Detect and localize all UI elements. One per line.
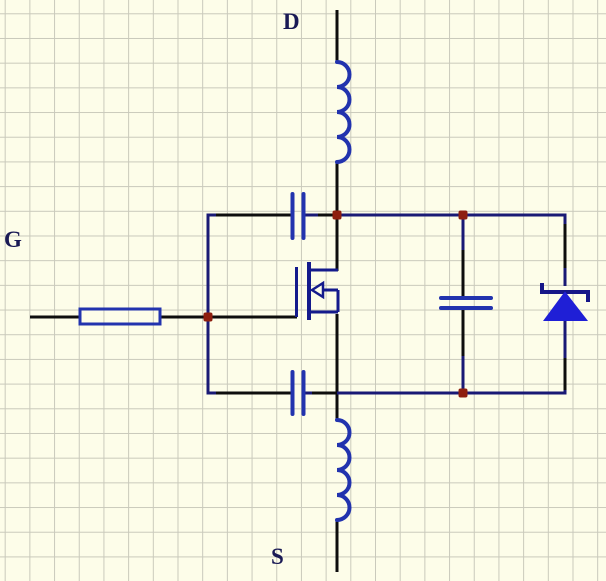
gate-terminal-label[interactable]: G [4,228,22,251]
mosfet-symbol[interactable] [297,262,339,320]
junction-dot-drain-top [333,211,342,220]
source-inductor[interactable] [337,420,350,520]
junction-dot-cap-bottom [459,389,468,398]
left-loop-wire[interactable] [208,215,216,393]
drain-terminal-label[interactable]: D [283,10,300,33]
mosfet-arrow-icon [312,283,323,297]
navy-wires [208,215,565,393]
schottky-diode-symbol[interactable] [542,283,588,320]
circuit-drawing [0,0,606,581]
diode-anode-triangle[interactable] [545,293,586,320]
passive-components [80,62,491,520]
gate-resistor[interactable] [80,309,160,324]
source-terminal-label[interactable]: S [271,545,284,568]
junction-dot-cap-top [459,211,468,220]
schematic-canvas: D G S [0,0,606,581]
drain-inductor[interactable] [337,62,350,162]
bottom-wire-right-segment[interactable] [337,390,565,393]
junction-dot-gate [204,313,213,322]
top-wire-right-segment[interactable] [341,215,565,224]
